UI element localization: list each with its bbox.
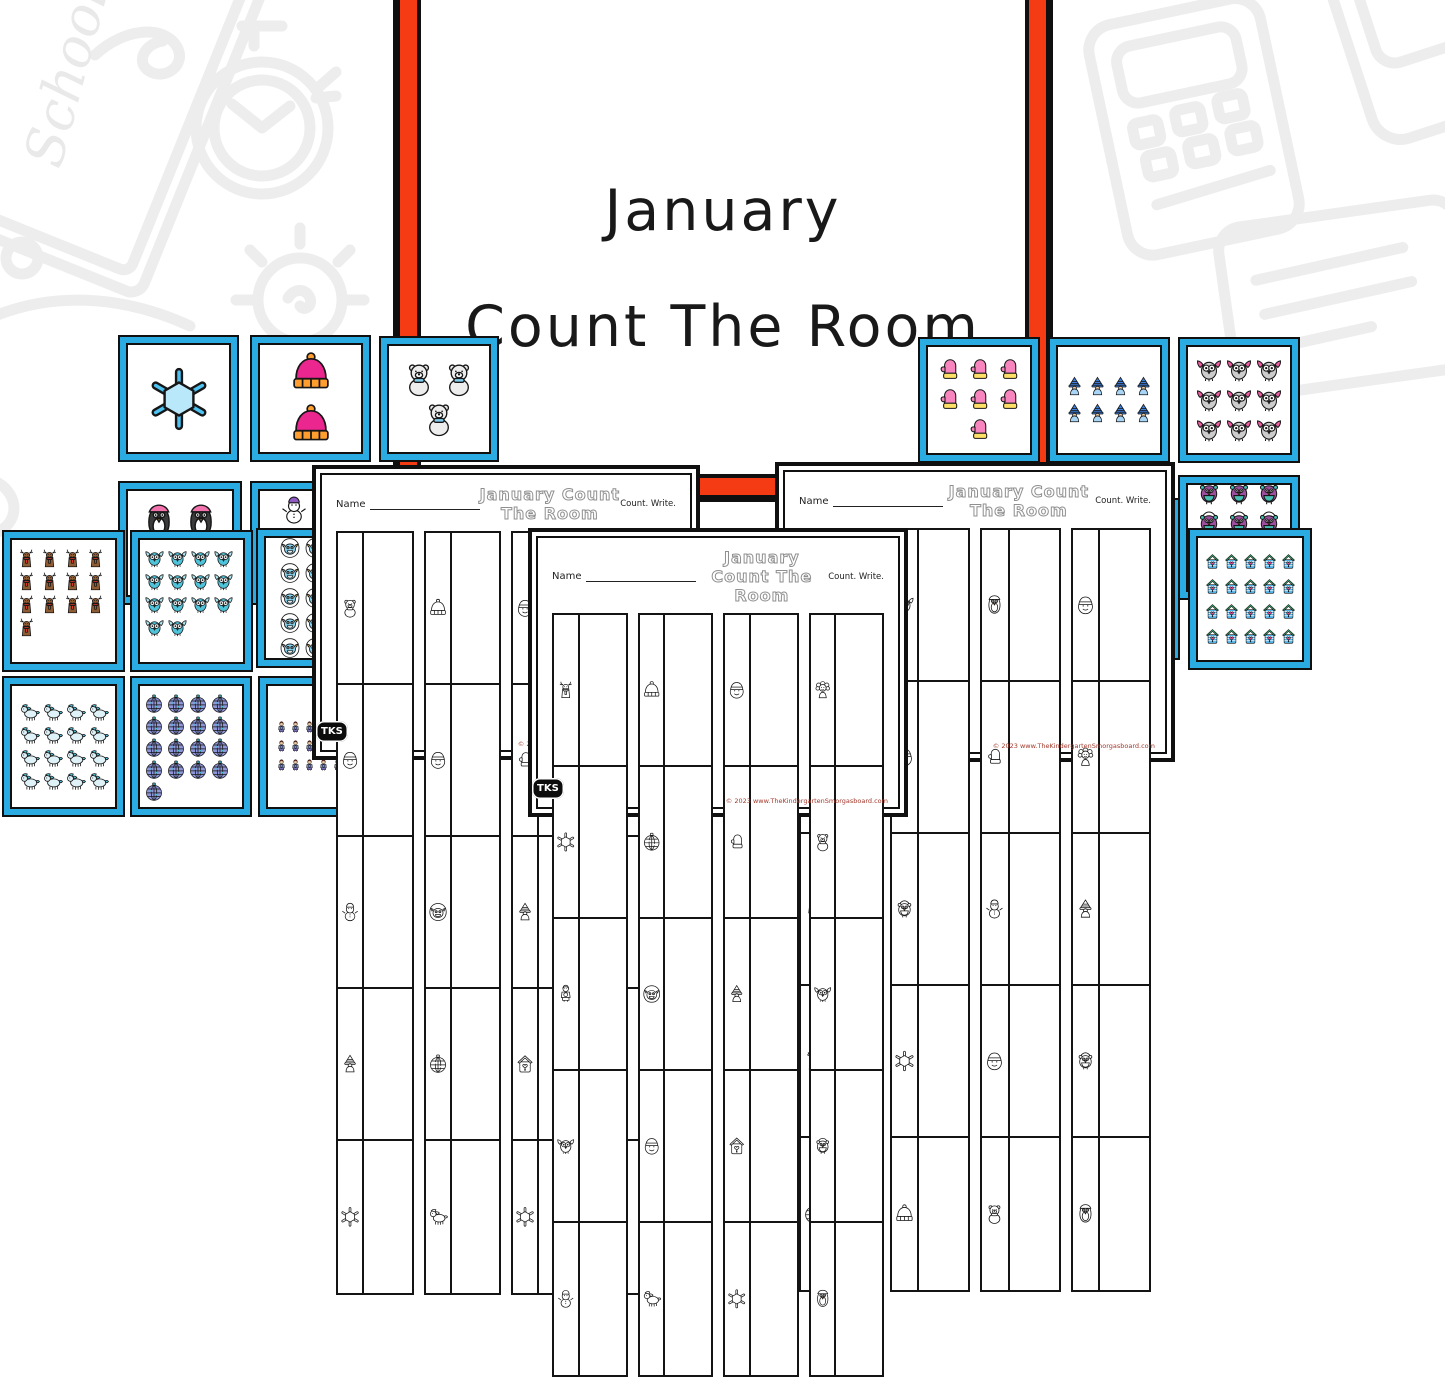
answer-blank-cell — [751, 1071, 797, 1221]
snowman-face-picture-cell — [982, 986, 1010, 1136]
owl-icon — [1225, 356, 1253, 384]
horse-icon — [42, 771, 63, 792]
birdhouse-icon — [515, 998, 535, 1130]
ornament-icon — [166, 716, 186, 736]
ornament-icon — [166, 738, 186, 758]
worksheet-row — [554, 1223, 626, 1375]
count-card-snowflake-1 — [118, 335, 239, 462]
mitten-icon — [995, 356, 1023, 384]
snowman-face-icon — [642, 1080, 661, 1212]
worksheet-row — [811, 1071, 883, 1223]
answer-blank-cell — [1010, 986, 1059, 1136]
moose-icon — [62, 594, 83, 615]
count-card-ornaments-17 — [130, 676, 252, 817]
ornament-icon — [144, 738, 164, 758]
worksheet-column — [336, 531, 414, 1295]
owl-icon — [1255, 416, 1283, 444]
birdhouse-icon — [1280, 553, 1297, 570]
birdhouse-icon — [1204, 578, 1221, 595]
worksheet-row — [426, 837, 500, 989]
snowflake-picture-cell — [338, 1141, 364, 1293]
worksheet-row — [338, 685, 412, 837]
snowman-face-icon — [727, 624, 746, 756]
lightbulb-doodle — [236, 228, 364, 342]
name-label: Name — [799, 496, 829, 507]
count-card-hats-2 — [250, 335, 371, 462]
mitten-icon — [984, 691, 1005, 823]
snowflake-picture-cell — [725, 1223, 751, 1375]
moose-icon — [16, 594, 37, 615]
birdhouse-icon — [1242, 578, 1259, 595]
birdhouse-icon — [1223, 578, 1240, 595]
moose-icon — [85, 548, 106, 569]
horse-picture-cell — [640, 1223, 666, 1375]
copyright-text: © 2023 www.TheKindergartenSmorgasboard.c… — [993, 742, 1155, 750]
answer-blank-cell — [452, 837, 499, 987]
birdhouse-icon — [1223, 628, 1240, 645]
birdhouse-icon — [727, 1080, 746, 1212]
worksheet-row — [725, 767, 797, 919]
answer-blank-cell — [836, 615, 882, 765]
worksheet-row — [640, 1071, 712, 1223]
ornament-icon — [188, 760, 208, 780]
ornament-icon — [210, 738, 230, 758]
hat-picture-cell — [426, 533, 452, 683]
ornament-icon — [188, 694, 208, 714]
kid-icon — [289, 721, 302, 734]
answer-blank-cell — [1010, 682, 1059, 832]
horse-icon — [65, 702, 86, 723]
title-line-month: January — [421, 178, 1025, 244]
tks-logo: TKS — [316, 721, 348, 742]
mitten-icon — [727, 776, 746, 908]
worksheet-row — [982, 1138, 1059, 1290]
horse-icon — [42, 702, 63, 723]
girl-picture-cell — [1073, 682, 1101, 832]
count-card-bears-3 — [379, 336, 499, 462]
owl-icon — [1195, 386, 1223, 414]
bear-icon — [421, 401, 457, 437]
horse-icon — [42, 748, 63, 769]
snowflake-icon — [727, 1232, 746, 1366]
answer-blank-cell — [665, 767, 711, 917]
snowman-icon — [556, 1232, 575, 1366]
bird-picture-cell — [892, 834, 920, 984]
ornament-picture-cell — [640, 767, 666, 917]
owl-icon — [190, 571, 211, 592]
worksheet-instructions: Count. Write. — [1095, 496, 1151, 506]
hat-picture-cell — [640, 615, 666, 765]
penguin-picture-cell — [1073, 1138, 1101, 1290]
answer-blank-cell — [751, 1223, 797, 1375]
owl-icon — [144, 548, 165, 569]
owl-picture-cell — [811, 919, 837, 1069]
snowman-face-picture-cell — [338, 685, 364, 835]
horse-picture-cell — [426, 1141, 452, 1293]
ornament-icon — [144, 782, 164, 802]
answer-blank-cell — [665, 615, 711, 765]
mitten-picture-cell — [725, 767, 751, 917]
answer-blank-cell — [364, 837, 411, 987]
bird-icon — [894, 843, 915, 975]
gnome-icon — [727, 928, 746, 1060]
birdhouse-icon — [1223, 603, 1240, 620]
bear-picture-cell — [982, 1138, 1010, 1290]
gnome-icon — [1064, 403, 1085, 424]
horse-icon — [88, 702, 109, 723]
worksheet-row — [1073, 986, 1150, 1138]
moose-icon — [62, 571, 83, 592]
snowman-face-icon — [428, 694, 448, 826]
owl-icon — [1195, 416, 1223, 444]
owl-icon — [213, 594, 234, 615]
hat-icon — [288, 402, 334, 448]
name-blank-line — [586, 571, 696, 582]
girl-icon — [1075, 691, 1096, 823]
snowman-icon — [279, 495, 309, 525]
birdhouse-icon — [1204, 553, 1221, 570]
gnome-icon — [1087, 376, 1108, 397]
answer-blank-cell — [580, 1071, 626, 1221]
worksheet-row — [811, 1223, 883, 1375]
mitten-picture-cell — [982, 682, 1010, 832]
worksheet-column — [980, 528, 1061, 1292]
kid-icon — [275, 740, 288, 753]
dot-doodle — [6, 242, 38, 274]
hat-icon — [288, 350, 334, 396]
ornament-icon — [210, 716, 230, 736]
worksheet-row — [1073, 530, 1150, 682]
worksheet-title: January Count The Room — [480, 485, 621, 523]
snowman-face-picture-cell — [1073, 530, 1101, 680]
answer-blank-cell — [1100, 1138, 1149, 1290]
answer-blank-cell — [580, 919, 626, 1069]
ornament-icon — [144, 716, 164, 736]
yeti-picture-cell — [640, 919, 666, 1069]
worksheet-row — [640, 767, 712, 919]
moose-icon — [16, 571, 37, 592]
answer-blank-cell — [665, 919, 711, 1069]
worksheet-row — [1073, 682, 1150, 834]
worksheet-row — [725, 1223, 797, 1375]
tks-logo: TKS — [532, 778, 564, 799]
answer-blank-cell — [751, 767, 797, 917]
horse-icon — [88, 725, 109, 746]
horse-icon — [65, 771, 86, 792]
horse-icon — [65, 725, 86, 746]
mitten-icon — [965, 416, 993, 444]
worksheet-column — [1071, 528, 1152, 1292]
worksheet-row — [811, 919, 883, 1071]
worksheet-row — [811, 767, 883, 919]
snowman-icon — [340, 846, 360, 978]
answer-blank-cell — [1010, 834, 1059, 984]
worksheet-column — [809, 613, 885, 1377]
worksheet-title: January Count The Room — [943, 482, 1096, 520]
horse-icon — [88, 771, 109, 792]
horse-icon — [428, 1150, 448, 1284]
answer-blank-cell — [919, 986, 968, 1136]
moose-icon — [39, 548, 60, 569]
answer-blank-cell — [452, 989, 499, 1139]
name-blank-line — [833, 496, 943, 507]
moose-icon — [16, 548, 37, 569]
owl-icon — [144, 594, 165, 615]
answer-blank-cell — [1100, 682, 1149, 832]
hat-icon — [428, 542, 448, 674]
snowman-face-picture-cell — [640, 1071, 666, 1221]
yeti-icon — [428, 846, 448, 978]
worksheet-row — [892, 986, 969, 1138]
kid-icon — [317, 759, 330, 772]
answer-blank-cell — [580, 767, 626, 917]
birdhouse-icon — [1261, 628, 1278, 645]
bear-picture-cell — [811, 767, 837, 917]
owl-icon — [213, 571, 234, 592]
girl-picture-cell — [811, 615, 837, 765]
ornament-icon — [144, 694, 164, 714]
snowman-picture-cell — [338, 837, 364, 987]
curve-doodle — [0, 300, 190, 326]
owl-icon — [167, 594, 188, 615]
hat-icon — [894, 1147, 915, 1281]
owl-icon — [144, 617, 165, 638]
yeti-icon — [642, 928, 661, 1060]
count-card-gray-birds-9 — [1178, 337, 1300, 463]
birdhouse-icon — [1261, 603, 1278, 620]
worksheet-column — [638, 613, 714, 1377]
mitten-icon — [935, 356, 963, 384]
answer-blank-cell — [836, 767, 882, 917]
count-card-mittens-7 — [918, 337, 1040, 463]
name-blank-line — [370, 499, 480, 510]
birdhouse-icon — [1280, 628, 1297, 645]
worksheet-column — [424, 531, 502, 1295]
snowman-face-icon — [340, 694, 360, 826]
ornament-icon — [144, 760, 164, 780]
kid-icon — [275, 721, 288, 734]
count-card-gnomes-8 — [1048, 337, 1170, 463]
gnome-icon — [1110, 376, 1131, 397]
gnome-picture-cell — [338, 989, 364, 1139]
worksheet-instructions: Count. Write. — [828, 572, 884, 582]
ornament-icon — [188, 716, 208, 736]
yeti-icon — [279, 537, 301, 559]
worksheet-row — [1073, 1138, 1150, 1290]
kid-icon — [289, 759, 302, 772]
owl-icon — [144, 571, 165, 592]
bird-picture-cell — [811, 1071, 837, 1221]
mitten-icon — [965, 386, 993, 414]
snowflake-icon — [340, 1150, 360, 1284]
owl-icon — [1225, 386, 1253, 414]
bear-icon — [813, 776, 832, 908]
worksheet-row — [554, 919, 626, 1071]
ornament-icon — [166, 760, 186, 780]
answer-blank-cell — [665, 1071, 711, 1221]
kid-icon — [556, 928, 575, 1060]
bear-icon — [340, 542, 360, 674]
penguin-picture-cell — [811, 1223, 837, 1375]
yeti-icon — [279, 562, 301, 584]
answer-blank-cell — [919, 530, 968, 680]
snowman-face-picture-cell — [725, 615, 751, 765]
owl-icon — [167, 548, 188, 569]
ornament-icon — [642, 776, 661, 908]
horse-icon — [19, 702, 40, 723]
snowflake-picture-cell — [892, 986, 920, 1136]
gnome-picture-cell — [513, 837, 539, 987]
birdhouse-icon — [1280, 603, 1297, 620]
birdhouse-icon — [1242, 603, 1259, 620]
answer-blank-cell — [364, 989, 411, 1139]
snowflake-icon — [147, 367, 211, 431]
scribble-doodle — [0, 480, 14, 532]
horse-icon — [19, 771, 40, 792]
hat-picture-cell — [892, 1138, 920, 1290]
birdhouse-icon — [1204, 628, 1221, 645]
answer-blank-cell — [751, 615, 797, 765]
promo-collage: { "title_card": { "line1": "January", "l… — [0, 0, 1445, 819]
worksheet-title: January Count The Room — [696, 548, 829, 605]
birdhouse-icon — [1280, 578, 1297, 595]
worksheet-row — [426, 685, 500, 837]
birdhouse-icon — [1242, 553, 1259, 570]
birdhouse-icon — [1204, 603, 1221, 620]
gnome-icon — [1133, 376, 1154, 397]
worksheet-row — [640, 919, 712, 1071]
ornament-icon — [210, 694, 230, 714]
kid-picture-cell — [554, 919, 580, 1069]
mitten-icon — [995, 386, 1023, 414]
owl-icon — [1255, 386, 1283, 414]
owl-icon — [167, 617, 188, 638]
worksheet-row — [892, 834, 969, 986]
answer-blank-cell — [1100, 986, 1149, 1136]
bear-icon — [401, 361, 437, 397]
worksheet-row — [338, 989, 412, 1141]
mitten-icon — [935, 386, 963, 414]
worksheet-row — [338, 1141, 412, 1293]
copyright-text: © 2023 www.TheKindergartenSmorgasboard.c… — [726, 797, 888, 805]
owl-icon — [190, 594, 211, 615]
snowman-picture-cell — [554, 1223, 580, 1375]
owl-icon — [556, 1080, 575, 1212]
answer-blank-cell — [452, 533, 499, 683]
answer-blank-cell — [1100, 530, 1149, 680]
penguin-picture-cell — [982, 530, 1010, 680]
bird-icon — [1255, 483, 1283, 507]
gnome-icon — [515, 846, 535, 978]
worksheet-row — [982, 682, 1059, 834]
answer-blank-cell — [1010, 530, 1059, 680]
owl-icon — [167, 571, 188, 592]
owl-picture-cell — [554, 1071, 580, 1221]
yeti-picture-cell — [426, 837, 452, 987]
worksheet-row — [1073, 834, 1150, 986]
ornament-icon — [188, 738, 208, 758]
worksheet-row — [338, 533, 412, 685]
snowflake-picture-cell — [513, 1141, 539, 1293]
answer-blank-cell — [364, 1141, 411, 1293]
horse-icon — [642, 1232, 661, 1366]
birdhouse-icon — [1261, 578, 1278, 595]
yeti-icon — [279, 587, 301, 609]
answer-blank-cell — [836, 1071, 882, 1221]
worksheet-row — [892, 1138, 969, 1290]
worksheet-row — [725, 1071, 797, 1223]
owl-icon — [813, 928, 832, 1060]
answer-blank-cell — [919, 682, 968, 832]
bird-icon — [813, 1080, 832, 1212]
ornament-icon — [166, 694, 186, 714]
snowman-face-icon — [984, 995, 1005, 1127]
birdhouse-picture-cell — [513, 989, 539, 1139]
ornament-icon — [210, 760, 230, 780]
answer-blank-cell — [364, 533, 411, 683]
owl-icon — [190, 548, 211, 569]
answer-blank-cell — [919, 1138, 968, 1290]
worksheet-row — [426, 533, 500, 685]
yeti-icon — [279, 637, 301, 659]
snowman-icon — [984, 843, 1005, 975]
name-label: Name — [552, 571, 582, 582]
answer-blank-cell — [364, 685, 411, 835]
horse-icon — [88, 748, 109, 769]
snowman-picture-cell — [982, 834, 1010, 984]
worksheet-page-center: Name January Count The Room Count. Write… — [528, 528, 908, 817]
gnome-icon — [1087, 403, 1108, 424]
gnome-picture-cell — [725, 919, 751, 1069]
moose-picture-cell — [554, 615, 580, 765]
bear-icon — [984, 1147, 1005, 1281]
worksheet-row — [982, 530, 1059, 682]
count-card-moose-13 — [2, 530, 125, 672]
snowflake-icon — [515, 1150, 535, 1284]
worksheet-column — [552, 613, 628, 1377]
penguin-icon — [984, 539, 1005, 671]
answer-blank-cell — [452, 685, 499, 835]
gnome-picture-cell — [1073, 834, 1101, 984]
worksheet-row — [338, 837, 412, 989]
owl-icon — [213, 548, 234, 569]
kid-icon — [275, 759, 288, 772]
worksheet-row — [811, 615, 883, 767]
birdhouse-icon — [1223, 553, 1240, 570]
horse-icon — [19, 725, 40, 746]
worksheet-row — [725, 615, 797, 767]
bear-picture-cell — [338, 533, 364, 683]
gnome-icon — [1064, 376, 1085, 397]
worksheet-row — [426, 989, 500, 1141]
moose-icon — [85, 594, 106, 615]
bird-picture-cell — [1073, 986, 1101, 1136]
birdhouse-picture-cell — [725, 1071, 751, 1221]
count-card-horses-16 — [2, 676, 125, 817]
phone-doodle — [1323, 0, 1445, 147]
horse-icon — [42, 725, 63, 746]
worksheet-row — [640, 1223, 712, 1375]
name-label: Name — [336, 499, 366, 510]
answer-blank-cell — [580, 1223, 626, 1375]
worksheet-grid — [552, 613, 884, 1377]
answer-blank-cell — [919, 834, 968, 984]
kid-icon — [289, 740, 302, 753]
penguin-icon — [813, 1232, 832, 1366]
gnome-icon — [1133, 403, 1154, 424]
answer-blank-cell — [1100, 834, 1149, 984]
owl-icon — [1255, 356, 1283, 384]
